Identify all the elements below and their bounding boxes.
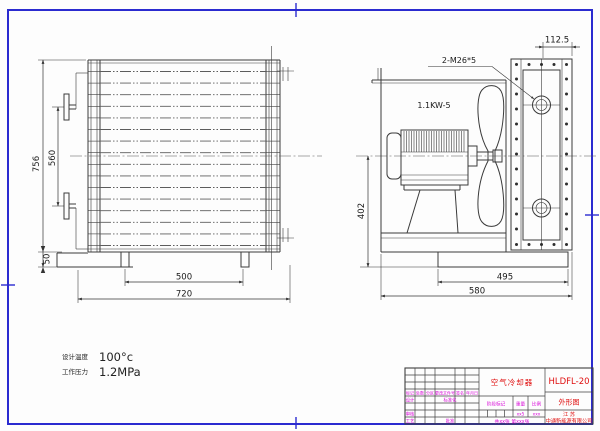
- company-name: 中通新能源有限公司: [546, 417, 593, 425]
- side-view: 1.1KW-5 2-M26*5 112.5 402 495 580: [356, 36, 596, 301]
- bolt-dot: [565, 78, 568, 81]
- dim-center-height: 402: [357, 203, 367, 219]
- dim-base-height: 50: [43, 254, 53, 265]
- working-pressure-label: 工作压力: [62, 367, 88, 376]
- bolt-dot: [515, 138, 518, 141]
- design-temp-label: 设计温度: [62, 352, 89, 361]
- bolt-dot: [515, 243, 518, 246]
- bolt-dot: [515, 153, 518, 156]
- part-name: 空气冷却器: [491, 377, 534, 387]
- rev-header-docno: 更改文件号: [435, 390, 455, 396]
- bolt-dot: [565, 153, 568, 156]
- pedestal-right-leg: [455, 190, 458, 233]
- bolt-dot: [515, 183, 518, 186]
- bolt-dot: [515, 93, 518, 96]
- bolt-dot: [565, 93, 568, 96]
- rev-header-date: 年月日: [466, 390, 478, 396]
- base-and-feet: [57, 252, 249, 267]
- sig-standard: 标准化: [444, 397, 458, 404]
- drawing-sheet: 756 560 50 500 720: [0, 0, 600, 431]
- engineering-drawing: 756 560 50 500 720: [0, 0, 600, 431]
- bolt-dot: [553, 243, 556, 246]
- design-temp-value: 100°c: [99, 350, 133, 364]
- bolt-dot: [565, 138, 568, 141]
- bolt-dot: [515, 123, 518, 126]
- bolt-dot: [565, 63, 568, 66]
- spec-notes: 设计温度 100°c 工作压力 1.2MPa: [62, 350, 141, 379]
- dim-base-width: 495: [497, 273, 513, 283]
- port-thread-label: 2-M26*5: [442, 56, 476, 65]
- weight-label: 重量: [516, 400, 526, 407]
- coil-box-side: [511, 59, 572, 250]
- bolt-dot: [565, 108, 568, 111]
- motor-power-label: 1.1KW-5: [417, 101, 450, 110]
- bolt-dot: [515, 213, 518, 216]
- bolt-dot: [540, 63, 543, 66]
- dim-port-distance: 560: [48, 150, 58, 166]
- dim-overall-width: 720: [176, 290, 192, 300]
- front-view: 756 560 50 500 720: [32, 46, 322, 303]
- bolt-dot: [515, 78, 518, 81]
- view-name: 外形图: [559, 398, 580, 407]
- scale-label: 比例: [532, 400, 542, 407]
- rev-header-sign: 签名: [456, 390, 464, 396]
- bolt-dot: [515, 108, 518, 111]
- dim-overall-height: 756: [32, 156, 42, 172]
- bolt-dot: [565, 198, 568, 201]
- rev-header-count: 处数: [416, 390, 424, 396]
- drawing-number: HLDFL-20: [548, 377, 589, 387]
- company-region: 江 苏: [563, 410, 575, 418]
- pedestal-left-leg: [407, 190, 420, 233]
- dim-depth: 112.5: [545, 36, 569, 46]
- scale-value: xxx: [533, 412, 541, 417]
- bolt-dot: [528, 63, 531, 66]
- bolt-dot: [515, 168, 518, 171]
- sig-process: 工艺: [406, 419, 415, 425]
- dim-feet-span: 500: [176, 273, 192, 283]
- bolt-dot: [565, 123, 568, 126]
- bolt-dot: [565, 243, 568, 246]
- left-port-flanges: [64, 73, 88, 249]
- bolt-dot: [515, 198, 518, 201]
- sig-approve: 批准: [446, 418, 455, 425]
- bolt-dot: [553, 63, 556, 66]
- weight-value: xx5: [517, 411, 525, 417]
- title-block: 标记 处数 分区 更改文件号 签名 年月日 设计 标准化 审核 工艺 批准 空气…: [405, 368, 593, 425]
- sig-check: 审核: [406, 411, 415, 418]
- bolt-dot: [565, 168, 568, 171]
- bolt-dot: [565, 183, 568, 186]
- bolt-dot: [565, 213, 568, 216]
- bolt-dot: [515, 63, 518, 66]
- stage-mark-label: 阶段标记: [487, 400, 506, 407]
- motor: [387, 130, 493, 233]
- rev-header-zone: 分区: [426, 390, 434, 396]
- bolt-dot: [565, 228, 568, 231]
- working-pressure-value: 1.2MPa: [99, 365, 141, 379]
- bolt-dot: [540, 243, 543, 246]
- rev-header-mark: 标记: [406, 390, 414, 396]
- bolt-dot: [515, 228, 518, 231]
- sheet-count: 共xx张 第xxx张: [495, 418, 530, 425]
- sig-design: 设计: [406, 397, 415, 404]
- bolt-dot: [528, 243, 531, 246]
- dim-side-overall-width: 580: [469, 287, 485, 297]
